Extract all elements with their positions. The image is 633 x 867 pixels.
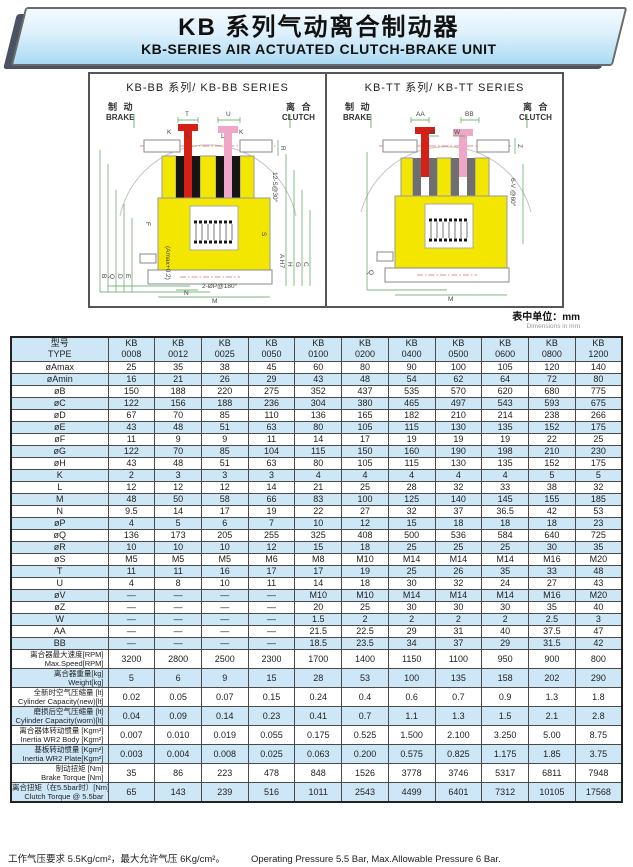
value-cell: 45: [248, 361, 295, 373]
value-cell: —: [108, 613, 155, 625]
value-cell: 90: [388, 361, 435, 373]
model-number: 0100: [295, 349, 341, 360]
row-label-en: Cylinder Capacity(worn)[lt]: [12, 716, 104, 725]
model-header-cell: KB0050: [248, 337, 295, 361]
value-cell: 1526: [342, 763, 389, 782]
value-cell: —: [108, 625, 155, 637]
value-cell: 100: [388, 668, 435, 687]
value-cell: 30: [482, 601, 529, 613]
value-cell: 0.055: [248, 725, 295, 744]
row-label-en: Brake Torque [Nm]: [12, 773, 104, 782]
value-cell: 30: [388, 601, 435, 613]
value-cell: 1.3: [435, 706, 482, 725]
value-cell: 42: [528, 505, 575, 517]
value-cell: M20: [575, 589, 622, 601]
value-cell: —: [155, 601, 202, 613]
value-cell: 63: [248, 457, 295, 469]
value-cell: 2.1: [528, 706, 575, 725]
model-brand: KB: [436, 338, 482, 349]
value-cell: 25: [108, 361, 155, 373]
value-cell: 28: [295, 668, 342, 687]
value-cell: 156: [155, 397, 202, 409]
value-cell: —: [108, 589, 155, 601]
row-label-cell: 制动扭矩 [Nm]Brake Torque [Nm]: [11, 763, 108, 782]
value-cell: —: [201, 625, 248, 637]
value-cell: 29: [388, 625, 435, 637]
value-cell: M14: [388, 553, 435, 565]
value-cell: 5317: [482, 763, 529, 782]
value-cell: 437: [342, 385, 389, 397]
brake-disc-blade: [421, 127, 429, 177]
value-cell: 5.00: [528, 725, 575, 744]
value-cell: —: [248, 601, 295, 613]
value-cell: 1.3: [528, 687, 575, 706]
value-cell: 27: [342, 505, 389, 517]
table-row: 离合器重量[kg]Weight[kg]569152853100135158202…: [11, 668, 622, 687]
value-cell: 275: [248, 385, 295, 397]
dim-label: M: [212, 298, 217, 304]
value-cell: —: [248, 613, 295, 625]
value-cell: 145: [482, 493, 529, 505]
value-cell: M5: [108, 553, 155, 565]
value-cell: 0.575: [388, 744, 435, 763]
model-header-cell: KB0400: [388, 337, 435, 361]
value-cell: 31.5: [528, 637, 575, 649]
value-cell: 500: [388, 529, 435, 541]
value-cell: 23.5: [342, 637, 389, 649]
dim-label: Z: [516, 144, 523, 148]
diagram-kb-bb-title: KB-BB 系列/ KB-BB SERIES: [90, 74, 325, 95]
value-cell: 570: [435, 385, 482, 397]
value-cell: 35: [528, 601, 575, 613]
value-cell: 210: [528, 445, 575, 457]
value-cell: 10105: [528, 782, 575, 802]
value-cell: 900: [528, 649, 575, 668]
value-cell: 0.004: [155, 744, 202, 763]
dim-label: Q: [108, 274, 115, 279]
table-row: L1212121421252832333832: [11, 481, 622, 493]
model-header-cell: KB0200: [342, 337, 389, 361]
row-label-cn: 离合扭矩（在5.5bar时）[Nm]: [12, 783, 104, 792]
value-cell: 238: [528, 409, 575, 421]
value-cell: 15: [295, 541, 342, 553]
value-cell: 7312: [482, 782, 529, 802]
row-label-cn: 离合器体转动惯量 [Kgm²]: [12, 726, 104, 735]
row-label-cell: 全新时空气压缩量 [lt]Cylinder Capacity(new)[lt]: [11, 687, 108, 706]
value-cell: 25: [435, 541, 482, 553]
model-brand: KB: [389, 338, 435, 349]
value-cell: M14: [435, 553, 482, 565]
value-cell: —: [155, 613, 202, 625]
dim-label: AA: [416, 111, 425, 118]
row-label-cell: 离合器体转动惯量 [Kgm²]Inertia WR2 Body [Kgm²]: [11, 725, 108, 744]
value-cell: 3: [575, 613, 622, 625]
value-cell: 0.825: [435, 744, 482, 763]
clutch-label-en: CLUTCH: [519, 113, 552, 122]
value-cell: 4: [295, 469, 342, 481]
value-cell: 1.1: [388, 706, 435, 725]
row-label-cell: øC: [11, 397, 108, 409]
value-cell: 0.23: [248, 706, 295, 725]
value-cell: 190: [435, 445, 482, 457]
value-cell: —: [248, 589, 295, 601]
value-cell: M10: [342, 589, 389, 601]
value-cell: 64: [482, 373, 529, 385]
units-note: 表中单位：mm Dimensions in mm: [512, 308, 580, 330]
clutch-pad: [216, 156, 224, 198]
value-cell: 70: [155, 409, 202, 421]
value-cell: 2.8: [575, 706, 622, 725]
value-cell: 18: [342, 541, 389, 553]
value-cell: 135: [482, 421, 529, 433]
value-cell: 160: [388, 445, 435, 457]
value-cell: 36.5: [482, 505, 529, 517]
value-cell: 80: [295, 457, 342, 469]
model-brand: KB: [342, 338, 388, 349]
clutch-label-cn: 离 合: [523, 101, 550, 112]
dim-label: K: [239, 129, 244, 136]
value-cell: 152: [528, 421, 575, 433]
value-cell: 2543: [342, 782, 389, 802]
value-cell: 12: [248, 541, 295, 553]
value-cell: 516: [248, 782, 295, 802]
value-cell: —: [201, 637, 248, 649]
value-cell: 35: [575, 541, 622, 553]
value-cell: 33: [528, 565, 575, 577]
value-cell: 18: [342, 577, 389, 589]
air-port: [140, 254, 156, 263]
value-cell: 175: [575, 421, 622, 433]
value-cell: 104: [248, 445, 295, 457]
table-row: øAmax25353845608090100105120140: [11, 361, 622, 373]
value-cell: 60: [295, 361, 342, 373]
row-label-cell: 离合器重量[kg]Weight[kg]: [11, 668, 108, 687]
value-cell: 130: [435, 421, 482, 433]
value-cell: 5: [575, 469, 622, 481]
value-cell: 27: [528, 577, 575, 589]
table-row: øD677085110136165182210214238266: [11, 409, 622, 421]
row-label-cell: øAmin: [11, 373, 108, 385]
value-cell: 32: [435, 577, 482, 589]
table-row: øF11991114171919192225: [11, 433, 622, 445]
value-cell: 0.525: [342, 725, 389, 744]
value-cell: 54: [388, 373, 435, 385]
value-cell: 0.200: [342, 744, 389, 763]
value-cell: 67: [108, 409, 155, 421]
value-cell: 12: [201, 481, 248, 493]
dim-label: W: [429, 129, 436, 136]
value-cell: 2.5: [528, 613, 575, 625]
value-cell: 5: [528, 469, 575, 481]
value-cell: 188: [201, 397, 248, 409]
value-cell: 19: [248, 505, 295, 517]
value-cell: 53: [575, 505, 622, 517]
value-cell: 3: [248, 469, 295, 481]
value-cell: 0.09: [155, 706, 202, 725]
table-row: BB————18.523.534372931.542: [11, 637, 622, 649]
value-cell: 11: [248, 433, 295, 445]
value-cell: —: [248, 625, 295, 637]
value-cell: 800: [575, 649, 622, 668]
value-cell: 122: [108, 445, 155, 457]
value-cell: 58: [201, 493, 248, 505]
value-cell: 5: [108, 668, 155, 687]
value-cell: 28: [388, 481, 435, 493]
dim-label: 2-ØP@180°: [202, 282, 238, 290]
value-cell: 48: [155, 421, 202, 433]
value-cell: 19: [435, 433, 482, 445]
value-cell: 1.5: [482, 706, 529, 725]
brake-label-cn: 制 动: [345, 101, 372, 112]
model-brand: KB: [529, 338, 575, 349]
model-number: 0500: [436, 349, 482, 360]
value-cell: 135: [435, 668, 482, 687]
row-label-cell: øV: [11, 589, 108, 601]
row-label-cell: N: [11, 505, 108, 517]
value-cell: 0.04: [108, 706, 155, 725]
value-cell: 3.75: [575, 744, 622, 763]
units-note-en: Dimensions in mm: [512, 323, 580, 330]
value-cell: 85: [201, 445, 248, 457]
value-cell: 12: [342, 517, 389, 529]
value-cell: M10: [342, 553, 389, 565]
dim-label: H: [286, 262, 293, 267]
value-cell: M14: [388, 589, 435, 601]
value-cell: 25: [388, 541, 435, 553]
value-cell: 150: [342, 445, 389, 457]
value-cell: 497: [435, 397, 482, 409]
value-cell: 0.15: [248, 687, 295, 706]
row-label-cell: øH: [11, 457, 108, 469]
dim-label: T: [185, 111, 189, 118]
table-row: 磨损后空气压缩量 [lt]Cylinder Capacity(worn)[lt]…: [11, 706, 622, 725]
value-cell: —: [108, 637, 155, 649]
row-label-en: Inertia WR2 Body [Kgm²]: [12, 735, 104, 744]
value-cell: 25: [342, 601, 389, 613]
value-cell: 0.05: [155, 687, 202, 706]
dim-label: (Amax+0.2): [164, 246, 171, 280]
value-cell: 0.02: [108, 687, 155, 706]
air-port: [377, 252, 393, 261]
value-cell: 80: [342, 361, 389, 373]
value-cell: 2: [388, 613, 435, 625]
row-label-cell: L: [11, 481, 108, 493]
value-cell: 152: [528, 457, 575, 469]
row-label-cell: 基板转动惯量 [Kgm²]Inertia WR2 Plate[Kgm²]: [11, 744, 108, 763]
value-cell: 17: [295, 565, 342, 577]
value-cell: 50: [155, 493, 202, 505]
dim-label: N: [184, 290, 189, 297]
value-cell: 21: [295, 481, 342, 493]
base-plate: [385, 268, 509, 282]
value-cell: 3: [201, 469, 248, 481]
value-cell: 43: [108, 421, 155, 433]
value-cell: 4: [388, 469, 435, 481]
value-cell: 3200: [108, 649, 155, 668]
value-cell: 35: [108, 763, 155, 782]
value-cell: 236: [248, 397, 295, 409]
value-cell: 7: [248, 517, 295, 529]
value-cell: 26: [201, 373, 248, 385]
value-cell: 19: [388, 433, 435, 445]
page-title: KB 系列气动离合制动器: [141, 15, 496, 41]
value-cell: 1011: [295, 782, 342, 802]
dim-label: S: [260, 232, 267, 237]
value-cell: 130: [435, 457, 482, 469]
value-cell: 6811: [528, 763, 575, 782]
clutch-label-cn: 离 合: [286, 101, 313, 112]
value-cell: 21: [155, 373, 202, 385]
model-header-cell: KB0800: [528, 337, 575, 361]
value-cell: 11: [248, 577, 295, 589]
value-cell: 675: [575, 397, 622, 409]
value-cell: 3746: [435, 763, 482, 782]
table-row: M4850586683100125140145155185: [11, 493, 622, 505]
value-cell: 255: [248, 529, 295, 541]
value-cell: 188: [155, 385, 202, 397]
banner-plate: KB 系列气动离合制动器 KB-SERIES AIR ACTUATED CLUT…: [11, 7, 628, 66]
table-row: øE4348516380105115130135152175: [11, 421, 622, 433]
value-cell: 11: [155, 565, 202, 577]
row-label-cell: 磨损后空气压缩量 [lt]Cylinder Capacity(worn)[lt]: [11, 706, 108, 725]
table-row: U48101114183032242743: [11, 577, 622, 589]
table-row: 离合器体转动惯量 [Kgm²]Inertia WR2 Body [Kgm²]0.…: [11, 725, 622, 744]
value-cell: 38: [201, 361, 248, 373]
value-cell: 43: [575, 577, 622, 589]
table-row: 制动扭矩 [Nm]Brake Torque [Nm]35862234788481…: [11, 763, 622, 782]
dim-label: R: [279, 146, 286, 151]
value-cell: 37.5: [528, 625, 575, 637]
dim-label: G: [294, 262, 301, 267]
value-cell: 136: [295, 409, 342, 421]
model-header-cell: KB0600: [482, 337, 529, 361]
table-row: N9.51417192227323736.54253: [11, 505, 622, 517]
value-cell: 775: [575, 385, 622, 397]
value-cell: 135: [482, 457, 529, 469]
value-cell: 17568: [575, 782, 622, 802]
value-cell: 66: [248, 493, 295, 505]
row-label-en: Clutch Torque @ 5.5bar: [12, 792, 104, 801]
row-label-cell: U: [11, 577, 108, 589]
value-cell: —: [108, 601, 155, 613]
table-row: 离合器最大速度[RPM]Max.Speed[RPM]32002800250023…: [11, 649, 622, 668]
table-row: W————1.522222.53: [11, 613, 622, 625]
table-row: øP456710121518181823: [11, 517, 622, 529]
value-cell: 0.003: [108, 744, 155, 763]
value-cell: M20: [575, 553, 622, 565]
dim-label: U: [226, 111, 231, 118]
value-cell: 5: [155, 517, 202, 529]
value-cell: 0.019: [201, 725, 248, 744]
value-cell: 37: [435, 505, 482, 517]
brake-pad: [429, 158, 437, 196]
value-cell: 4: [482, 469, 529, 481]
clutch-pad: [451, 158, 459, 196]
value-cell: 136: [108, 529, 155, 541]
diagram-kb-tt: KB-TT 系列/ KB-TT SERIES 制 动 BRAKE 离 合 CLU…: [327, 74, 562, 306]
value-cell: 584: [482, 529, 529, 541]
row-label-cell: øG: [11, 445, 108, 457]
value-cell: 120: [528, 361, 575, 373]
row-label-cn: 基板转动惯量 [Kgm²]: [12, 745, 104, 754]
value-cell: —: [248, 637, 295, 649]
value-cell: 100: [342, 493, 389, 505]
value-cell: 8.75: [575, 725, 622, 744]
value-cell: 15: [248, 668, 295, 687]
value-cell: 16: [108, 373, 155, 385]
value-cell: 290: [575, 668, 622, 687]
value-cell: 10: [201, 577, 248, 589]
value-cell: 266: [575, 409, 622, 421]
model-brand: KB: [249, 338, 295, 349]
value-cell: 2: [482, 613, 529, 625]
value-cell: M16: [528, 589, 575, 601]
value-cell: 14: [295, 577, 342, 589]
value-cell: 230: [575, 445, 622, 457]
value-cell: 72: [528, 373, 575, 385]
value-cell: 22: [295, 505, 342, 517]
brake-label-cn: 制 动: [108, 101, 135, 112]
value-cell: 1150: [388, 649, 435, 668]
value-cell: 25: [575, 433, 622, 445]
value-cell: 10: [201, 541, 248, 553]
value-cell: 115: [388, 457, 435, 469]
value-cell: 0.7: [342, 706, 389, 725]
table-row: 基板转动惯量 [Kgm²]Inertia WR2 Plate[Kgm²]0.00…: [11, 744, 622, 763]
value-cell: —: [201, 613, 248, 625]
value-cell: 1.500: [388, 725, 435, 744]
row-label-en: Cylinder Capacity(new)[lt]: [12, 697, 104, 706]
value-cell: 62: [435, 373, 482, 385]
model-brand: KB: [295, 338, 341, 349]
value-cell: 43: [108, 457, 155, 469]
value-cell: 640: [528, 529, 575, 541]
model-header-cell: KB0012: [155, 337, 202, 361]
value-cell: 17: [342, 433, 389, 445]
model-number: 1200: [576, 349, 621, 360]
value-cell: 680: [528, 385, 575, 397]
value-cell: 0.007: [108, 725, 155, 744]
value-cell: 10: [155, 541, 202, 553]
model-number: 0050: [249, 349, 295, 360]
value-cell: 0.24: [295, 687, 342, 706]
value-cell: 9: [201, 433, 248, 445]
value-cell: 25: [388, 565, 435, 577]
table-row: øC122156188236304380465497543593675: [11, 397, 622, 409]
value-cell: M14: [482, 589, 529, 601]
value-cell: 18: [435, 517, 482, 529]
value-cell: 1.85: [528, 744, 575, 763]
value-cell: 0.175: [295, 725, 342, 744]
table-row: øAmin1621262943485462647280: [11, 373, 622, 385]
dim-label: L: [186, 133, 190, 140]
value-cell: 620: [482, 385, 529, 397]
dim-label: 12-S@30°: [271, 172, 279, 203]
kb-bb-drawing: 制 动 BRAKE 离 合 CLUTCH: [90, 94, 324, 304]
value-cell: —: [201, 589, 248, 601]
value-cell: —: [155, 625, 202, 637]
value-cell: M5: [201, 553, 248, 565]
value-cell: 32: [575, 481, 622, 493]
value-cell: 25: [342, 481, 389, 493]
dim-label: D: [116, 274, 123, 279]
value-cell: 950: [482, 649, 529, 668]
value-cell: 0.9: [482, 687, 529, 706]
value-cell: 24: [482, 577, 529, 589]
footer-note-en: Operating Pressure 5.5 Bar, Max.Allowabl…: [251, 854, 501, 865]
model-number: 0800: [529, 349, 575, 360]
value-cell: 158: [482, 668, 529, 687]
